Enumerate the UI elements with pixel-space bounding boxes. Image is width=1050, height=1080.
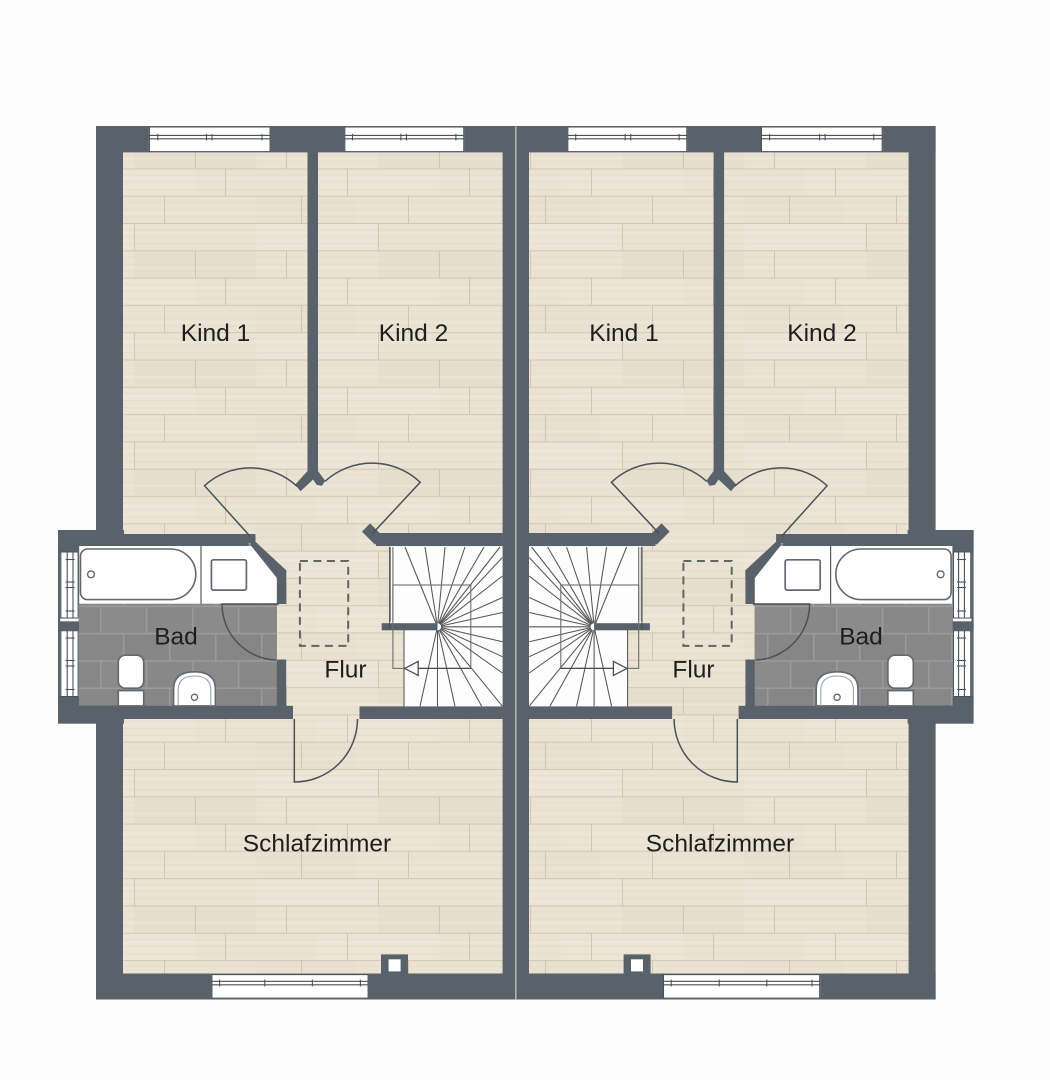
svg-text:Bad: Bad [839, 624, 883, 651]
svg-text:Kind 2: Kind 2 [379, 320, 448, 347]
svg-text:Flur: Flur [672, 657, 714, 684]
svg-text:Schlafzimmer: Schlafzimmer [646, 831, 794, 858]
svg-text:Kind 2: Kind 2 [787, 320, 856, 347]
svg-text:Bad: Bad [154, 624, 198, 651]
svg-text:Kind 1: Kind 1 [589, 320, 658, 347]
svg-text:Kind 1: Kind 1 [181, 320, 250, 347]
svg-text:Flur: Flur [324, 657, 366, 684]
svg-text:Schlafzimmer: Schlafzimmer [243, 831, 391, 858]
